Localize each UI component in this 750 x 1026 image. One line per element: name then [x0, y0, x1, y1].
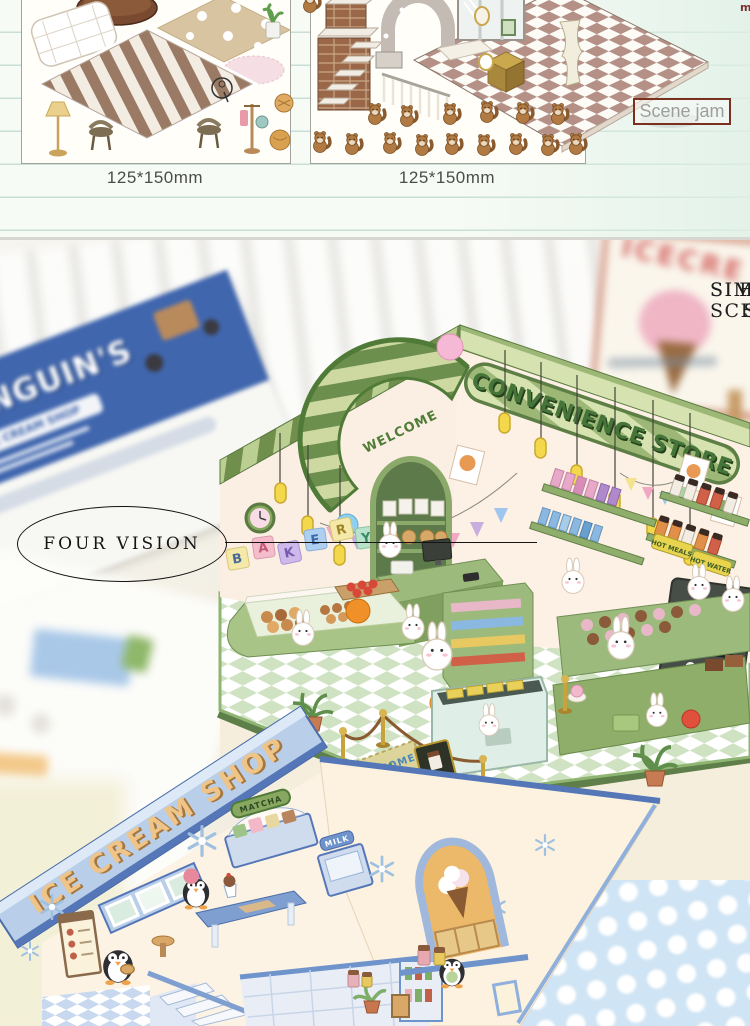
page: m — [0, 0, 750, 1026]
size-label-left: 125*150mm — [21, 168, 289, 190]
menu-stand — [59, 911, 101, 977]
size-label-right: 125*150mm — [310, 168, 584, 190]
exterior-frame — [494, 981, 521, 1014]
coat-rack-sticker — [240, 104, 268, 154]
sheet-circle-sticker — [28, 711, 52, 735]
pink-balloon — [437, 334, 463, 360]
four-vision-badge: FOUR VISION — [17, 506, 227, 582]
cut-off-text: m — [740, 1, 750, 14]
sheet-circle-sticker — [0, 692, 18, 719]
bedroom-scene-illustration — [22, 0, 290, 163]
snack-gondola — [443, 583, 533, 689]
floor-lamp-sticker — [46, 102, 70, 157]
product-photo-bedroom-scene — [21, 0, 291, 164]
four-vision-text: FOUR VISION — [43, 534, 200, 554]
tagline-line-3: SIMNO — [710, 280, 750, 301]
picture-frame — [392, 995, 409, 1017]
squirrel-sticker — [304, 0, 320, 13]
bread-stickers — [270, 94, 293, 150]
orange-fruit — [346, 599, 370, 623]
icecream-shop-diorama: ICE CREAM SHOP ICE CREAM SHOP MATCHA — [0, 745, 665, 1026]
wall-clock — [246, 504, 274, 532]
sheet-blue-sticker — [30, 628, 134, 686]
stair-scene-illustration — [310, 0, 710, 164]
scene-jam-badge: Scene jam — [633, 98, 731, 125]
stool-sticker-2 — [197, 120, 221, 148]
receipt-printer — [391, 561, 413, 574]
brick-stairs-sticker — [318, 0, 382, 110]
stool-leg — [160, 943, 166, 957]
ottoman-sticker — [488, 52, 524, 92]
annotation-leader-line — [225, 542, 537, 543]
hero-photo: ICECRE PENGUIN'S ICE CREAM SHOP — [0, 240, 750, 1026]
stool-sticker — [89, 122, 113, 150]
